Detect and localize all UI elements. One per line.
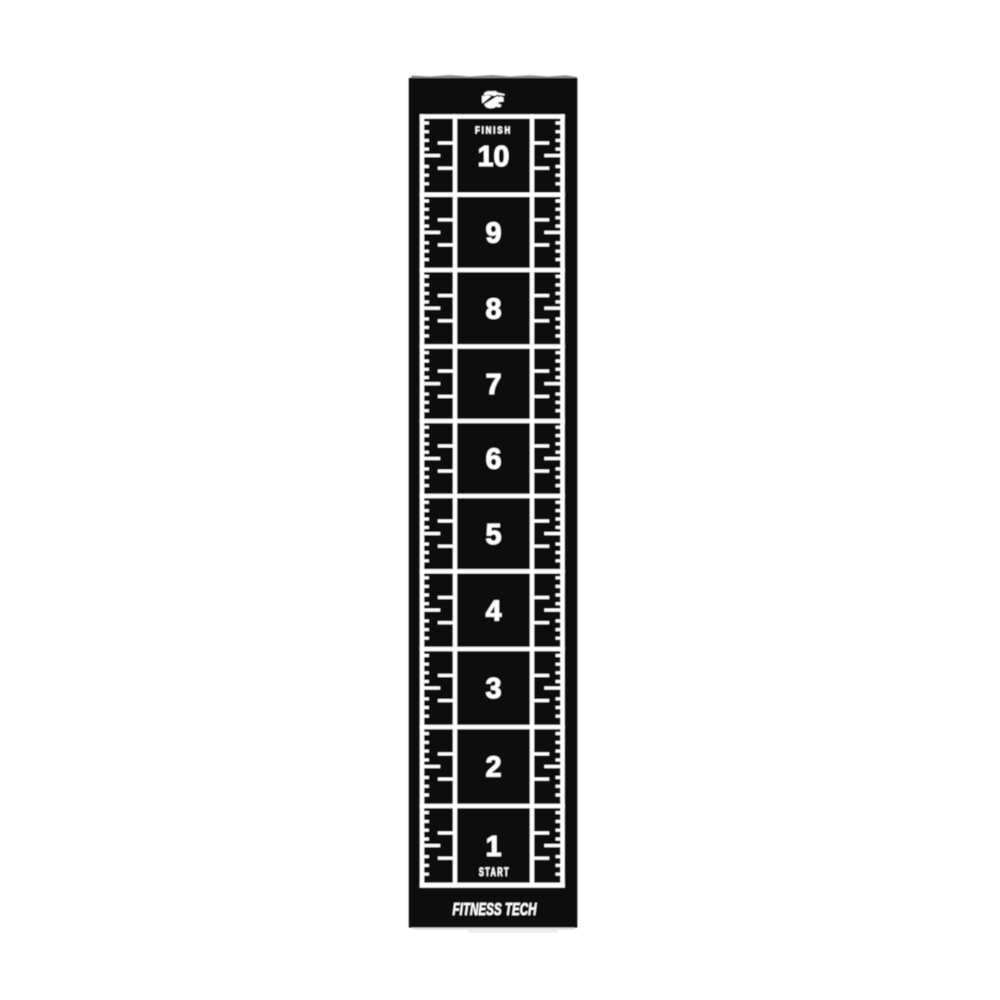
svg-text:START: START	[479, 867, 510, 879]
svg-text:1: 1	[486, 831, 502, 863]
svg-text:3: 3	[486, 673, 502, 705]
svg-text:7: 7	[486, 369, 502, 401]
svg-text:8: 8	[486, 293, 502, 325]
svg-text:5: 5	[486, 519, 502, 551]
svg-text:FINISH: FINISH	[475, 124, 512, 136]
svg-text:9: 9	[486, 218, 502, 250]
svg-text:4: 4	[486, 595, 502, 627]
svg-text:FITNESS TECH: FITNESS TECH	[453, 899, 537, 919]
svg-text:2: 2	[486, 752, 502, 784]
svg-text:10: 10	[478, 141, 510, 173]
svg-text:6: 6	[486, 444, 502, 476]
